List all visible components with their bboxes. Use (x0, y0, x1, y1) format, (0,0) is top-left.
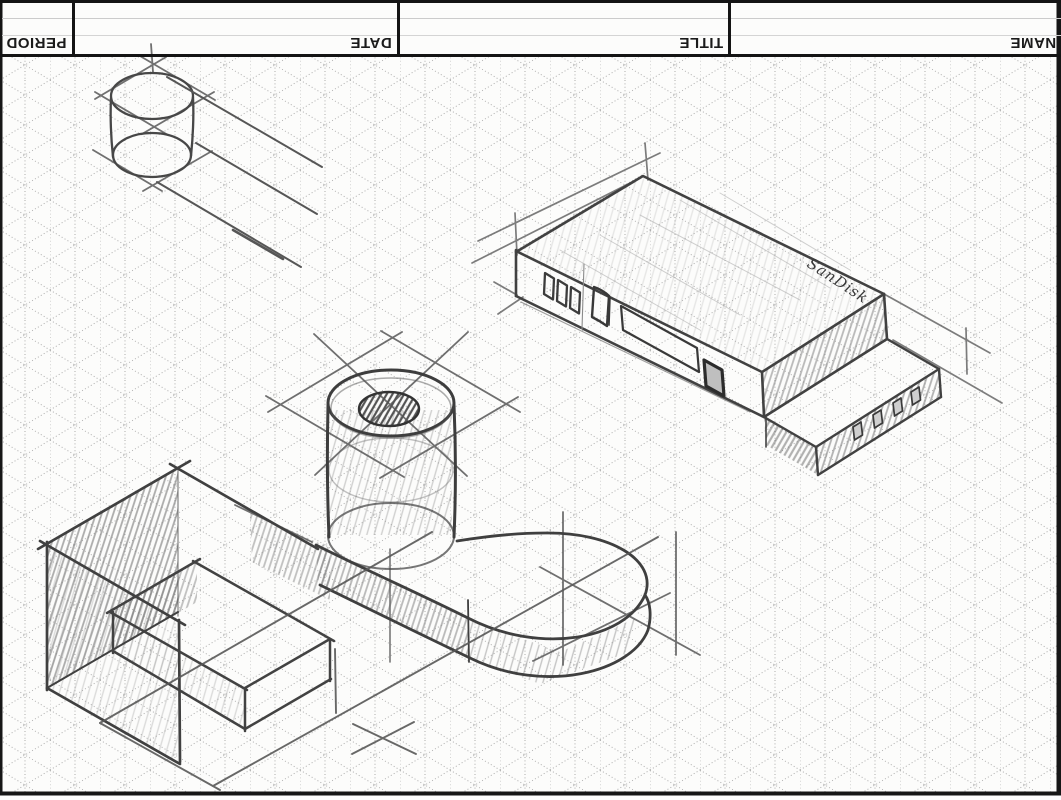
date-label: DATE (350, 34, 392, 51)
title-block-cell-name: NAME (731, 3, 1061, 54)
counterbore-hole (359, 392, 419, 426)
right-border (1057, 0, 1061, 795)
bottom-border (0, 792, 1061, 796)
title-block-cell-period: PERIOD (0, 3, 75, 54)
name-label: NAME (1010, 34, 1056, 51)
title-block-cell-title: TITLE (400, 3, 731, 54)
scanned-isometric-worksheet: PERIOD DATE TITLE NAME (0, 0, 1061, 800)
title-block: PERIOD DATE TITLE NAME (0, 0, 1061, 57)
sketch-canvas: SanDisk (0, 0, 1061, 800)
bottom-margin (0, 796, 1061, 800)
left-border (0, 0, 3, 795)
title-block-cell-date: DATE (75, 3, 400, 54)
period-label: PERIOD (6, 34, 67, 51)
title-label: TITLE (679, 34, 723, 51)
